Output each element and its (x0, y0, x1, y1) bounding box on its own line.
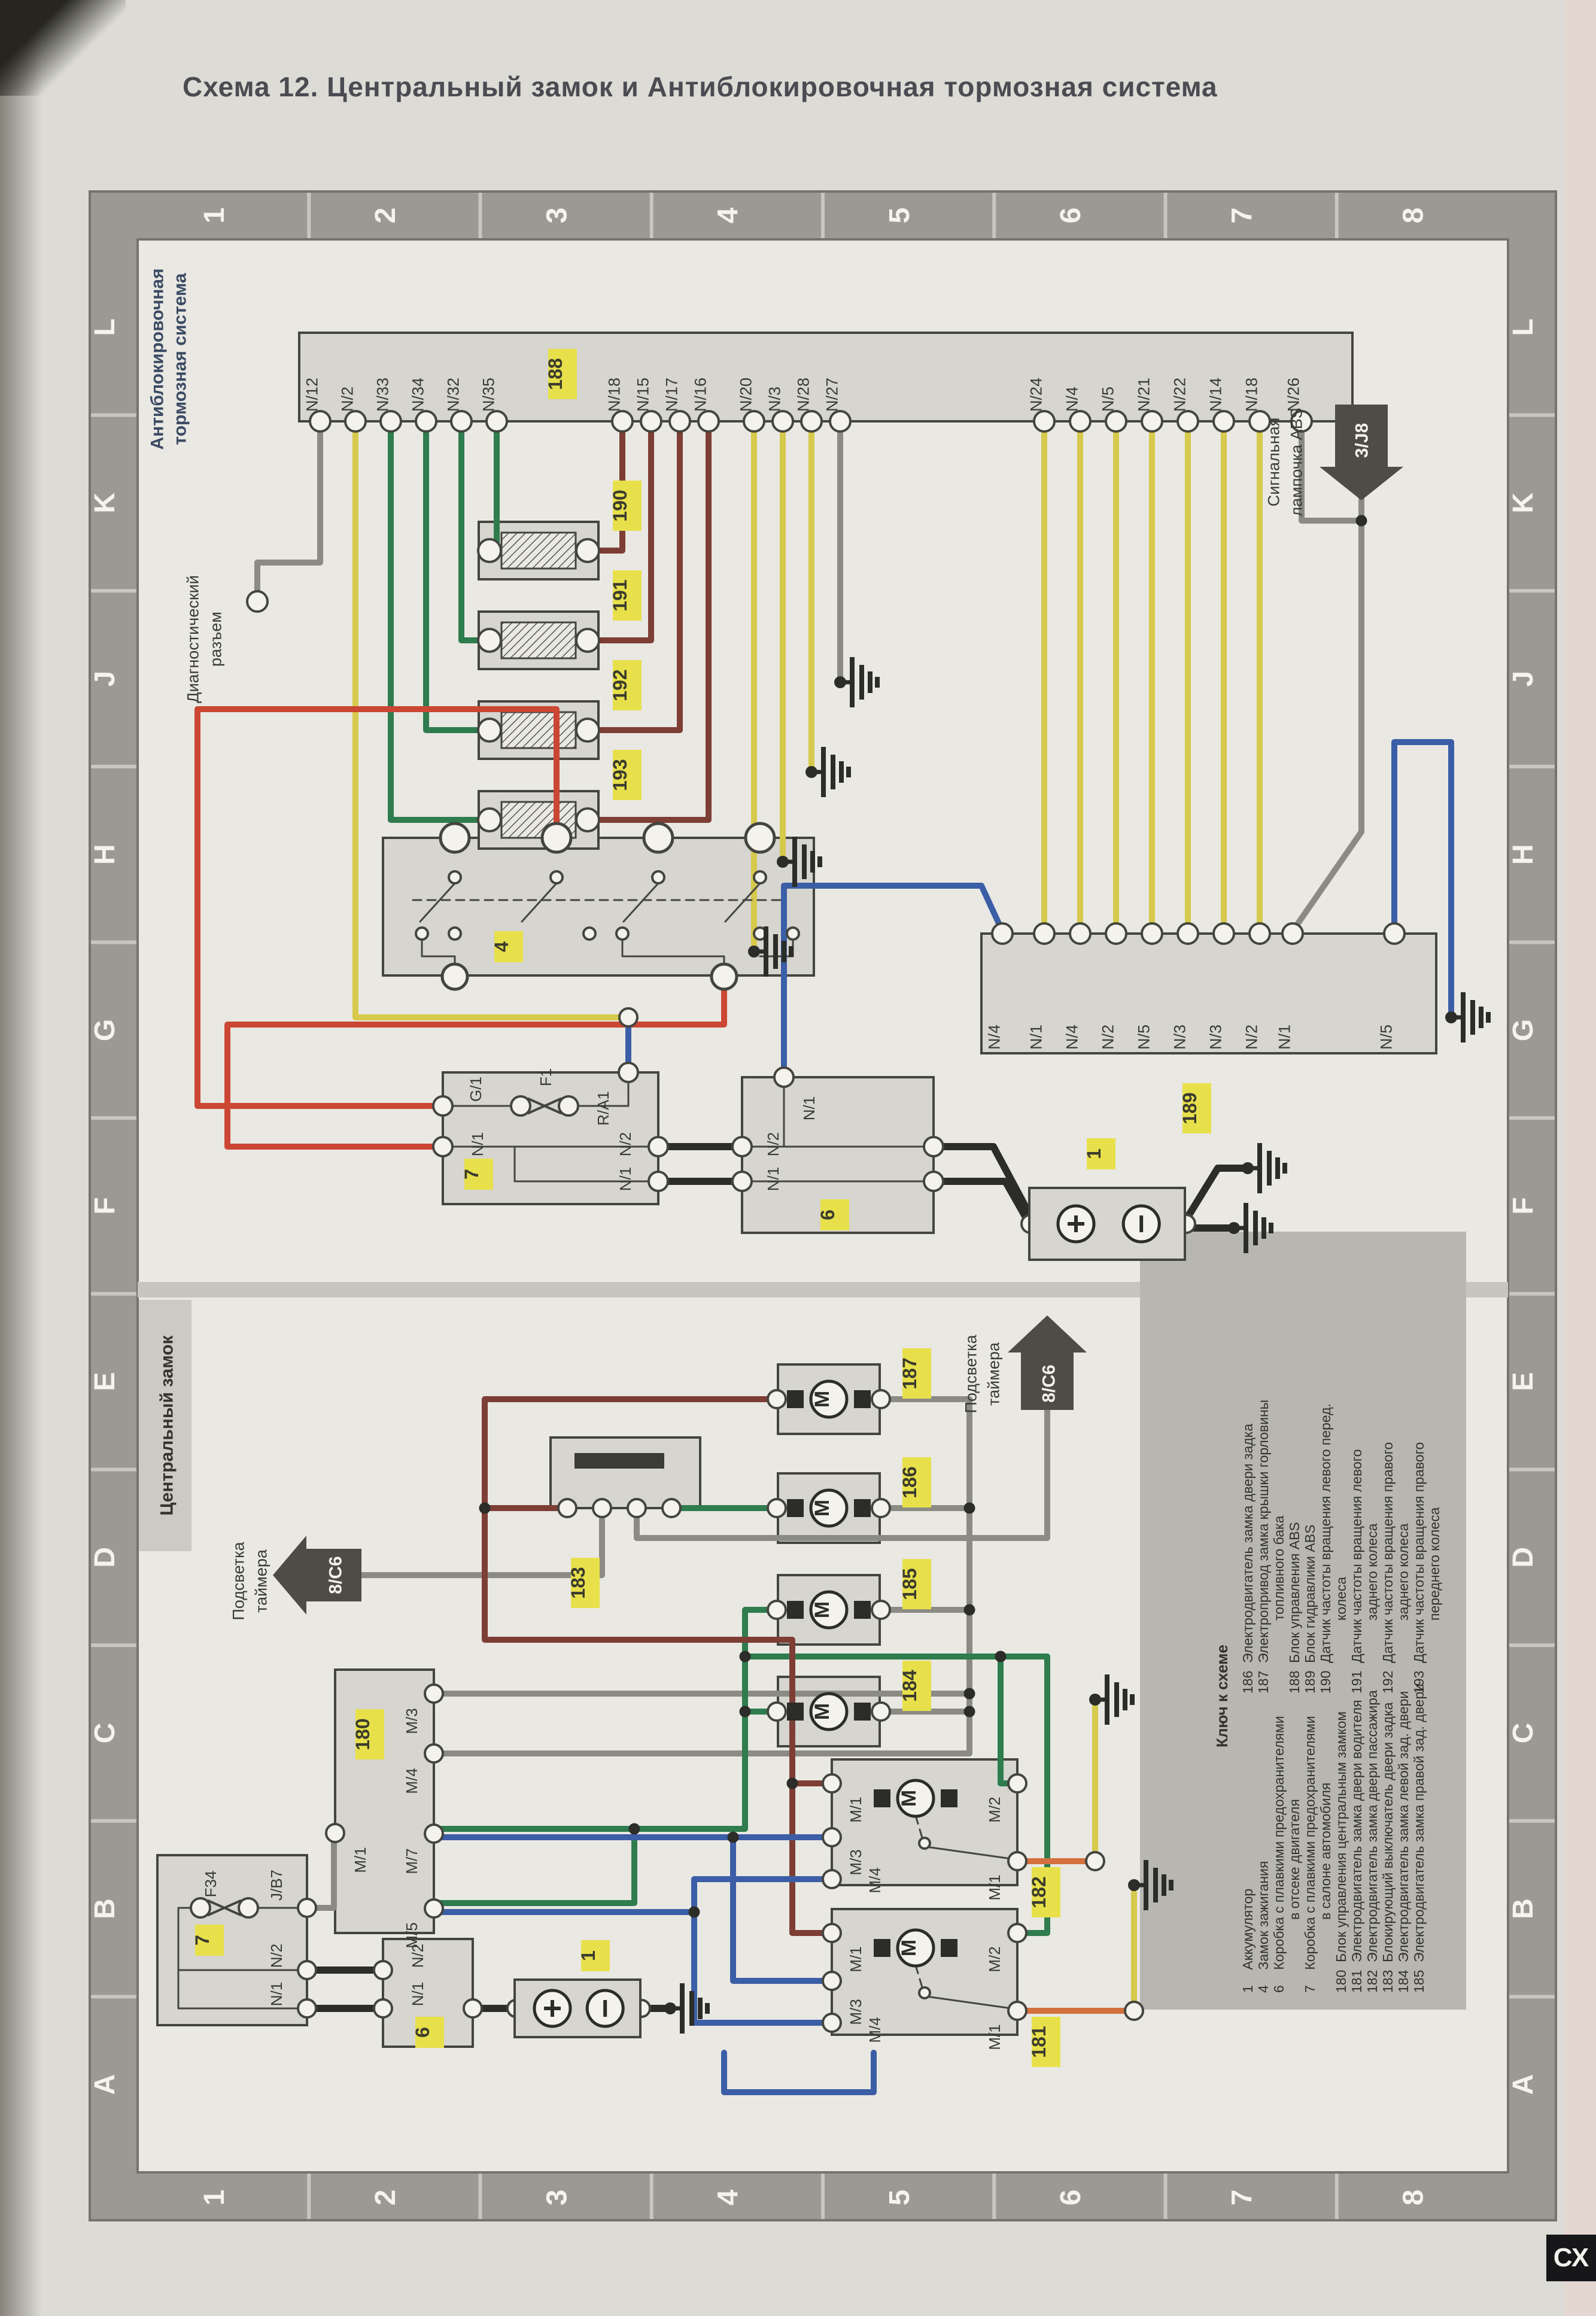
pin-label-188-N/15: N/15 (634, 378, 652, 412)
pin-188-N/16 (698, 411, 719, 431)
id-tag-191: 191 (609, 579, 631, 611)
id-tag-188: 188 (545, 358, 566, 390)
pin-label-188-N/28: N/28 (794, 378, 812, 412)
pin-188-N/17 (670, 411, 690, 431)
frame-number-top-3: 3 (541, 208, 573, 224)
pin-61 (823, 1972, 841, 1990)
motor-tab (854, 1601, 871, 1619)
pin-188-N/3 (773, 411, 793, 431)
junction-dot-7 (740, 1651, 751, 1662)
pin-188-N/32 (451, 411, 472, 431)
diagnostic-connector-label: Диагностический (184, 575, 202, 703)
pin-188-N/20 (744, 411, 764, 431)
pin-26 (433, 1096, 452, 1116)
pin-0 (247, 591, 267, 612)
pin-label-189-N/4: N/4 (1063, 1025, 1081, 1050)
pin-41 (662, 1499, 680, 1517)
pin-54 (326, 1824, 344, 1842)
pin-label-188-N/24: N/24 (1027, 378, 1045, 412)
legend-item: 4 Замок зажигания (1255, 1861, 1271, 1993)
id-tag-6: 6 (817, 1209, 838, 1220)
frame-letter-left-D: D (89, 1547, 121, 1568)
label: M/4 (866, 1867, 884, 1893)
pin-50 (425, 1685, 443, 1703)
junction-dot-10 (629, 1823, 640, 1835)
frame-letter-left-K: K (89, 493, 121, 513)
pin-32 (732, 1137, 752, 1156)
motor-tab (854, 1499, 871, 1517)
motor-tab (941, 1789, 957, 1807)
legend-item: 6 Коробка с плавкими предохранителями (1271, 1716, 1287, 1993)
wheel-sensor-190-element (501, 533, 576, 569)
pin-53 (425, 1899, 443, 1917)
pin-189-N/5 (1384, 923, 1405, 944)
id-tag-4: 4 (491, 941, 512, 952)
pin-7 (576, 719, 599, 741)
timer-light-label-1: Подсветка (229, 1542, 247, 1621)
frame-number-bottom-2: 2 (370, 2190, 402, 2206)
pin-20 (416, 928, 428, 940)
motor-letter: M (811, 1500, 834, 1516)
pin-42 (768, 1390, 786, 1408)
frame-number-top-1: 1 (199, 208, 230, 224)
pin-66 (1125, 2002, 1143, 2020)
legend-item: 7 Коробка с плавкими предохранителями (1302, 1716, 1318, 1993)
label: M/1 (847, 1946, 865, 1972)
pin-label-188-N/4: N/4 (1063, 387, 1081, 412)
pin-188-N/27 (830, 411, 850, 431)
label: F1 (537, 1068, 555, 1086)
label: N/1 (800, 1096, 818, 1120)
battery-1-abs (1029, 1188, 1185, 1260)
pin-15 (712, 964, 737, 989)
pin-68 (298, 1961, 316, 1979)
motor-tab (787, 1703, 804, 1721)
label: N/2 (267, 1944, 285, 1968)
legend-item: 193 Датчик частоты вращения правого (1411, 1442, 1427, 1694)
pin-56 (823, 1828, 841, 1846)
pin-12 (644, 823, 673, 852)
pin-label-188-N/34: N/34 (409, 378, 427, 412)
label: N/1 (616, 1167, 634, 1191)
label: F34 (202, 1871, 220, 1898)
pin-label-189-N/5: N/5 (1377, 1025, 1395, 1050)
pin-14 (442, 964, 467, 989)
pin-188-N/15 (641, 411, 661, 431)
pin-label-189-N/3: N/3 (1171, 1025, 1188, 1050)
pin-39 (593, 1499, 611, 1517)
frame-letter-left-G: G (89, 1019, 121, 1041)
frame-letter-right-B: B (1507, 1898, 1539, 1919)
pin-label-189-N/2: N/2 (1242, 1025, 1260, 1050)
label: M/3 (847, 1849, 865, 1875)
label: лампочка ABS (1287, 408, 1305, 516)
pin-188-N/34 (416, 411, 436, 431)
pin-label-188-N/17: N/17 (662, 378, 680, 412)
frame-letter-right-G: G (1507, 1019, 1539, 1041)
label: M/3 (403, 1708, 421, 1734)
pin-58 (1008, 1774, 1026, 1792)
legend-item: заднего колеса (1364, 1523, 1380, 1621)
pin-47 (872, 1601, 890, 1619)
pin-3 (576, 539, 599, 562)
legend-item: 185 Электродвигатель замка правой зад. д… (1411, 1684, 1427, 1993)
pin-52 (425, 1825, 443, 1843)
pin-188-N/33 (381, 411, 401, 431)
pin-34 (924, 1137, 943, 1156)
pin-75 (919, 1838, 930, 1849)
label: разъем (206, 612, 224, 667)
junction-dot-9 (995, 1651, 1007, 1662)
pin-38 (558, 1499, 576, 1517)
motor-letter: M (811, 1703, 834, 1720)
pin-13 (746, 823, 774, 852)
frame-number-bottom-4: 4 (713, 2189, 744, 2205)
frame-letter-left-A: A (89, 2074, 121, 2095)
pin-31 (774, 1068, 794, 1087)
legend-item: 190 Датчик частоты вращения левого перед… (1318, 1403, 1333, 1694)
wheel-sensor-191-element (501, 622, 576, 658)
pin-label-188-N/20: N/20 (737, 378, 755, 412)
pin-label-188-N/33: N/33 (373, 378, 391, 412)
legend-item: 189 Блок гидравлики ABS (1302, 1525, 1318, 1694)
label: N/1 (267, 1982, 285, 2006)
motor-tab (787, 1390, 804, 1408)
legend-item: 183 Блокирующий выключатель двери задка (1380, 1702, 1396, 1993)
pin-label-188-N/3: N/3 (765, 387, 783, 412)
frame-letter-right-F: F (1507, 1197, 1539, 1214)
junction-dot-12 (689, 1907, 700, 1918)
blocking-switch-183 (551, 1437, 700, 1508)
pin-label-188-N/16: N/16 (691, 378, 709, 412)
motor-letter: M (811, 1601, 834, 1618)
motor-letter: M (898, 1940, 920, 1956)
frame-number-bottom-3: 3 (541, 2190, 573, 2206)
motor-tab (787, 1601, 804, 1619)
pin-51 (425, 1744, 443, 1762)
pin-69 (298, 1999, 316, 2017)
pin-189-N/3 (1178, 923, 1198, 944)
page-marker: СХ (1546, 2235, 1596, 2281)
label: N/1 (409, 1982, 427, 2006)
frame-number-bottom-1: 1 (199, 2190, 230, 2206)
frame-letter-right-L: L (1507, 318, 1539, 336)
pin-11 (542, 823, 571, 852)
id-tag-192: 192 (609, 669, 631, 701)
pin-64 (1008, 2002, 1026, 2020)
pin-45 (872, 1499, 890, 1517)
pin-188-N/18 (612, 411, 633, 431)
pin-22 (583, 928, 595, 940)
label: M/4 (403, 1768, 421, 1794)
id-tag-184: 184 (899, 1670, 920, 1702)
pin-25 (787, 928, 799, 940)
pin-189-N/4 (1070, 923, 1090, 944)
pin-label-188-N/22: N/22 (1171, 378, 1188, 412)
pin-19 (754, 871, 766, 883)
junction-dot-0 (1356, 515, 1367, 527)
motor-tab (874, 1789, 890, 1807)
label: M/2 (986, 1946, 1004, 1972)
wheel-sensor-192-element (501, 712, 576, 748)
label: M/2 (986, 1797, 1004, 1822)
pin-189-N/4 (992, 923, 1013, 944)
id-tag-180: 180 (352, 1718, 373, 1750)
frame-letter-right-K: K (1507, 493, 1539, 513)
legend-item: 181 Электродвигатель замка двери водител… (1349, 1700, 1364, 1993)
switch-183-bar (574, 1453, 664, 1469)
id-tag-183: 183 (567, 1567, 589, 1598)
frame-number-top-4: 4 (713, 207, 744, 223)
legend-item: 186 Электродвигатель замка двери задка (1240, 1424, 1255, 1694)
id-tag-182: 182 (1028, 1876, 1050, 1908)
pin-189-N/2 (1106, 923, 1126, 944)
pin-44 (768, 1499, 786, 1517)
label: M/1 (351, 1847, 369, 1873)
pin-67 (298, 1899, 316, 1917)
pin-label-189-N/4: N/4 (985, 1025, 1003, 1050)
id-tag-6: 6 (412, 2027, 433, 2038)
abs-lamp-label: Сигнальная (1264, 418, 1282, 507)
legend-item: 180 Блок управления центральным замком (1333, 1712, 1349, 1993)
pin-188-N/12 (310, 411, 330, 431)
legend-item: колеса (1333, 1577, 1349, 1621)
junction-dot-6 (964, 1706, 975, 1718)
pin-21 (449, 928, 461, 940)
frame-letter-right-C: C (1507, 1723, 1539, 1744)
legend-item: в отсеке двигателя (1287, 1799, 1302, 1920)
label: M/3 (847, 1999, 865, 2025)
label: таймера (984, 1342, 1002, 1406)
pin-label-188-N/27: N/27 (823, 378, 841, 412)
pin-189-N/5 (1142, 923, 1162, 944)
pin-28 (619, 1063, 638, 1082)
label: M/1 (986, 1874, 1004, 1900)
pin-188-N/22 (1178, 411, 1198, 431)
id-tag-190: 190 (609, 490, 631, 521)
junction-dot-11 (728, 1832, 739, 1843)
frame-letter-right-D: D (1507, 1547, 1539, 1568)
pin-label-188-N/18: N/18 (1242, 378, 1260, 412)
abs-section-label-2: тормозная система (171, 273, 190, 445)
pin-10 (440, 823, 469, 852)
label: G/1 (467, 1077, 485, 1102)
pin-55 (823, 1774, 841, 1792)
pin-189-N/2 (1250, 923, 1270, 944)
motor-tab (941, 1939, 957, 1957)
frame-letter-right-H: H (1507, 844, 1539, 865)
pin-76 (919, 1987, 930, 1998)
motor-tab (787, 1499, 804, 1517)
pin-6 (478, 719, 501, 741)
pin-5 (576, 629, 599, 652)
pin-29 (649, 1137, 668, 1156)
label: M/4 (866, 2017, 884, 2043)
motor-tab (854, 1390, 871, 1408)
frame-letter-left-C: C (89, 1723, 121, 1744)
frame-letter-right-A: A (1507, 2074, 1539, 2095)
pin-27 (433, 1137, 452, 1156)
pin-2 (478, 539, 501, 562)
frame-letter-left-B: B (89, 1898, 121, 1919)
frame-letter-left-J: J (89, 671, 121, 687)
junction-dot-5 (964, 1688, 975, 1700)
pin-17 (551, 871, 563, 883)
pin-8 (478, 809, 501, 831)
pin-188-N/2 (345, 411, 366, 431)
id-tag-1: 1 (577, 1950, 599, 1961)
pin-49 (872, 1703, 890, 1721)
frame-number-top-5: 5 (884, 208, 916, 224)
label: M/5 (403, 1922, 421, 1948)
pin-188-N/35 (487, 411, 507, 431)
legend-item: 191 Датчик частоты вращения левого (1349, 1449, 1364, 1694)
pin-label-189-N/1: N/1 (1275, 1025, 1293, 1050)
legend-item: заднего колеса (1396, 1523, 1411, 1621)
pin-43 (872, 1390, 890, 1408)
ref-8c6-text-1: 8/C6 (326, 1556, 346, 1594)
frame-letter-right-J: J (1507, 671, 1539, 687)
pin-18 (652, 871, 664, 883)
pin-70 (374, 1961, 392, 1979)
pin-9 (576, 809, 599, 831)
pin-label-188-N/32: N/32 (444, 378, 462, 412)
pin-60 (823, 1924, 841, 1942)
pin-71 (374, 1999, 392, 2017)
pin-188-N/14 (1214, 411, 1234, 431)
pin-48 (768, 1703, 786, 1721)
frame-number-bottom-7: 7 (1226, 2190, 1258, 2206)
pin-63 (1008, 1924, 1026, 1942)
label: J/B7 (267, 1870, 285, 1901)
pin-label-189-N/1: N/1 (1027, 1025, 1045, 1050)
label: M/7 (403, 1848, 421, 1874)
pin-62 (823, 2014, 841, 2032)
frame-number-top-7: 7 (1226, 208, 1258, 224)
legend-item: 188 Блок управления ABS (1287, 1522, 1302, 1694)
pin-189-N/3 (1214, 923, 1234, 944)
junction-dot-3 (964, 1503, 975, 1514)
id-tag-186: 186 (899, 1466, 920, 1498)
id-tag-193: 193 (609, 759, 631, 791)
legend-item: топливного бака (1271, 1515, 1287, 1621)
pin-label-188-N/18: N/18 (605, 378, 623, 412)
pin-label-188-N/12: N/12 (303, 378, 321, 412)
pin-label-188-N/5: N/5 (1099, 387, 1117, 412)
label: N/2 (764, 1132, 782, 1156)
legend-item: в салоне автомобиля (1318, 1783, 1333, 1920)
legend-item: 192 Датчик частоты вращения правого (1380, 1442, 1396, 1694)
junction-dot-8 (740, 1706, 751, 1718)
motor-tab (854, 1703, 871, 1721)
ref-3j8-text: 3/J8 (1352, 423, 1372, 458)
pin-label-189-N/3: N/3 (1206, 1025, 1224, 1050)
junction-dot-1 (479, 1503, 491, 1514)
pin-4 (478, 629, 501, 652)
frame-number-bottom-6: 6 (1055, 2190, 1087, 2206)
scanned-page: Схема 12. Центральный замок и Антиблокир… (0, 0, 1596, 2316)
id-tag-1: 1 (1083, 1148, 1105, 1159)
frame-number-top-8: 8 (1398, 208, 1430, 224)
frame-letter-left-E: E (89, 1372, 121, 1391)
central-lock-section-label: Центральный замок (157, 1335, 177, 1515)
label: M/1 (847, 1797, 865, 1822)
label: R/A1 (594, 1091, 612, 1126)
pin-label-188-N/26: N/26 (1284, 378, 1302, 412)
id-tag-181: 181 (1028, 2026, 1050, 2057)
pin-188-N/21 (1142, 411, 1162, 431)
motor-letter: M (898, 1790, 920, 1807)
id-tag-185: 185 (899, 1568, 920, 1600)
abs-section-label: Антиблокировочная (148, 268, 168, 449)
pin-188-N/28 (801, 411, 822, 431)
pin-57 (823, 1870, 841, 1888)
wiring-diagram: 1122334455667788LLKKJJHHGGFFEEDDCCBBAAN/… (0, 0, 1596, 2316)
pin-72 (464, 1999, 482, 2017)
label: N/2 (616, 1132, 634, 1156)
label: таймера (252, 1549, 270, 1613)
pin-label-188-N/14: N/14 (1206, 378, 1224, 412)
pin-189-N/1 (1034, 923, 1054, 944)
pin-189-N/1 (1282, 923, 1303, 944)
pin-1 (619, 1008, 637, 1026)
frame-letter-right-E: E (1507, 1372, 1539, 1391)
motor-tab (874, 1939, 890, 1957)
frame-letter-left-H: H (89, 844, 121, 865)
id-tag-189: 189 (1179, 1092, 1200, 1124)
timer-light-label-2: Подсветка (962, 1335, 980, 1414)
legend-item: 182 Электродвигатель замка двери пассажи… (1364, 1690, 1380, 1993)
frame-number-top-6: 6 (1055, 208, 1087, 224)
pin-59 (1008, 1852, 1026, 1870)
id-tag-187: 187 (899, 1357, 920, 1389)
pin-label-188-N/21: N/21 (1135, 378, 1153, 412)
frame-letter-left-L: L (89, 318, 121, 336)
frame-number-top-2: 2 (370, 208, 402, 224)
legend-item: 187 Электропривод замка крышки горловины (1255, 1400, 1271, 1694)
ref-8c6-text-2: 8/C6 (1039, 1364, 1059, 1402)
pin-label-188-N/2: N/2 (338, 387, 356, 412)
frame-number-bottom-8: 8 (1398, 2190, 1430, 2206)
pin-label-189-N/5: N/5 (1135, 1025, 1153, 1050)
label: M/1 (986, 2024, 1004, 2050)
id-tag-7: 7 (191, 1935, 213, 1946)
pin-188-N/4 (1070, 411, 1090, 431)
legend-item: 1 Аккумулятор (1240, 1889, 1255, 1993)
pin-188-N/24 (1034, 411, 1054, 431)
motor-letter: M (811, 1391, 834, 1408)
frame-number-bottom-5: 5 (884, 2190, 916, 2206)
pin-40 (628, 1499, 646, 1517)
pin-23 (616, 928, 628, 940)
pin-35 (924, 1172, 943, 1191)
pin-33 (732, 1172, 752, 1191)
pin-30 (649, 1172, 668, 1191)
legend-item: 184 Электродвигатель замка левой зад. дв… (1396, 1691, 1411, 1993)
legend-title: Ключ к схеме (1213, 1645, 1231, 1747)
pin-65 (1086, 1852, 1104, 1870)
pin-188-N/5 (1106, 411, 1126, 431)
junction-dot-2 (787, 1778, 798, 1789)
junction-dot-4 (964, 1604, 975, 1616)
id-tag-7: 7 (461, 1169, 482, 1180)
frame-letter-left-F: F (89, 1197, 121, 1214)
legend-item: переднего колеса (1427, 1507, 1442, 1621)
pin-label-189-N/2: N/2 (1099, 1025, 1117, 1050)
label: N/1 (764, 1167, 782, 1191)
pin-label-188-N/35: N/35 (479, 378, 497, 412)
pin-16 (449, 871, 461, 883)
